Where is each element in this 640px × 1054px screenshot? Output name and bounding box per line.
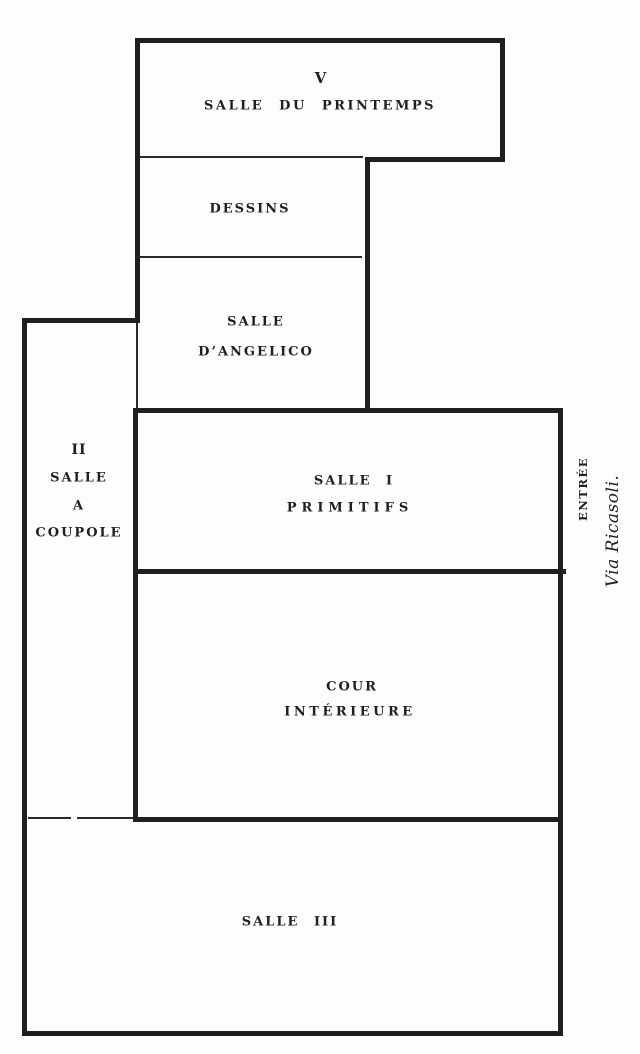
salle-coupole-number: II (71, 442, 86, 458)
salle1-name-line1: SALLE I (314, 474, 394, 489)
wall-printemps-dessins-divider (140, 156, 363, 158)
salle-printemps-number: V (315, 69, 328, 87)
wall-salle-printemps-north (135, 38, 505, 43)
wall-salle-coupole-south-left (28, 817, 71, 819)
cour-name-line1: COUR (326, 680, 378, 695)
wall-salle1-north (133, 408, 563, 413)
wall-middle-column-west (135, 38, 140, 323)
wall-middle-column-east (365, 157, 370, 413)
wall-cour-south (133, 817, 563, 822)
wall-salle-coupole-south-right (77, 817, 135, 819)
wall-salle3-south (22, 1031, 563, 1036)
dessins-name: DESSINS (209, 202, 290, 217)
salle-coupole-name-line3: COUPOLE (35, 526, 122, 541)
salle-coupole-name-line1: SALLE (50, 471, 108, 486)
wall-dessins-angelico-divider (138, 256, 362, 258)
wall-east-main (558, 408, 563, 1036)
salle-printemps-name: SALLE DU PRINTEMPS (204, 99, 436, 114)
wall-salle-coupole-north (22, 318, 140, 323)
salle-angelico-name-line2: D’ANGELICO (198, 345, 314, 360)
wall-salle-coupole-west (22, 318, 27, 1036)
cour-name-line2: INTÉRIEURE (284, 705, 415, 720)
wall-salle1-cour-divider (137, 569, 566, 574)
wall-salle-printemps-east (500, 38, 505, 162)
wall-middle-column-west-lower (136, 323, 138, 410)
salle3-name: SALLE III (242, 915, 338, 930)
entrance-label: ENTRÉE (576, 457, 590, 521)
floor-plan: V SALLE DU PRINTEMPS DESSINS SALLE D’ANG… (0, 0, 640, 1054)
wall-salle1-cour-west (133, 408, 138, 822)
salle1-name-line2: PRIMITIFS (287, 501, 414, 516)
salle-coupole-name-line2: A (73, 499, 85, 514)
salle-angelico-name-line1: SALLE (227, 315, 285, 330)
wall-salle-printemps-south-east (365, 157, 505, 162)
street-name-label: Via Ricasoli. (603, 475, 623, 588)
